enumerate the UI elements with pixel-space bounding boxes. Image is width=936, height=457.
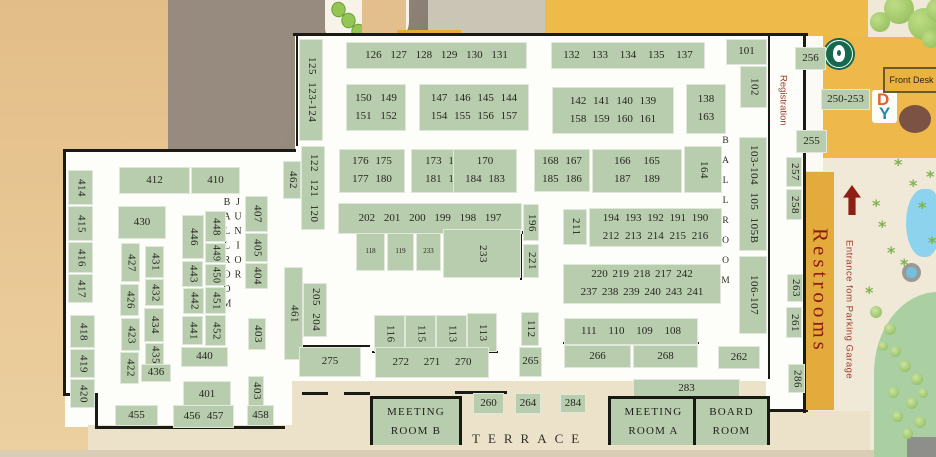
booth-261: 261	[786, 307, 802, 338]
booth-403: 403	[248, 318, 266, 350]
booth-number: 417	[72, 280, 90, 298]
booth-443: 443	[182, 261, 203, 287]
booth-number: 403	[248, 325, 266, 343]
booth-265: 265	[519, 347, 542, 377]
booth-number: 150 149 151 152	[355, 90, 397, 125]
booth-118: 118	[356, 233, 385, 271]
booth-number: 196	[522, 214, 540, 232]
booth-number: 441	[184, 322, 202, 340]
booth-number: 260	[480, 395, 497, 413]
booth-number: 426	[121, 291, 139, 309]
wall	[293, 33, 808, 36]
booth-number: 434	[145, 316, 163, 334]
booth-number: 283	[678, 380, 695, 398]
bush-icon	[902, 428, 913, 439]
booth-205-204: 205 204	[303, 283, 327, 337]
hotel-building	[545, 0, 868, 37]
bush-icon	[888, 387, 899, 398]
booth-number: 404	[248, 267, 266, 285]
booth-number: 420	[74, 385, 92, 403]
booth-431: 431	[145, 246, 164, 278]
booth-number: 113	[443, 325, 461, 343]
booth-418: 418	[70, 315, 95, 348]
board-room: Board Room	[693, 396, 770, 445]
booth-263: 263	[787, 274, 803, 302]
booth-number: 233	[423, 246, 434, 257]
booth-452: 452	[205, 315, 226, 346]
booth-458: 458	[247, 405, 274, 426]
bush-icon	[892, 411, 903, 422]
plant-icon: *	[900, 260, 908, 270]
booth-106-107: 106-107	[739, 256, 767, 334]
booth-number: 419	[74, 355, 92, 373]
booth-434: 434	[144, 308, 164, 342]
booth-220-219-218-217-242-237-238-239-240-243-241: 220 219 218 217 242 237 238 239 240 243 …	[563, 264, 721, 304]
booth-number: 418	[74, 323, 92, 341]
booth-number: 448	[207, 218, 225, 236]
booth-number: 103-104 105 105B	[744, 145, 762, 244]
booth-number: 142 141 140 139 158 159 160 161	[570, 93, 656, 128]
terrace-label: TERRACE	[472, 431, 587, 447]
booth-258: 258	[786, 189, 802, 220]
booth-number: 401	[199, 386, 216, 404]
booth-403: 403	[248, 376, 264, 406]
booth-420: 420	[70, 379, 95, 408]
parking-structure	[907, 437, 936, 457]
booth-446: 446	[182, 215, 204, 259]
up-arrow-icon	[843, 185, 861, 215]
booth-number: 435	[146, 346, 164, 364]
starbucks-siren-detail	[837, 50, 841, 56]
booth-number: 194 193 192 191 190 212 213 214 215 216	[603, 210, 709, 245]
bush-icon	[878, 341, 888, 351]
booth-176-175-177-180: 176 175 177 180	[339, 149, 405, 193]
booth-number: 220 219 218 217 242 237 238 239 240 243 …	[581, 266, 704, 301]
booth-194-193-192-191-190-212-213-214-215-216: 194 193 192 191 190 212 213 214 215 216	[589, 208, 722, 247]
booth-462: 462	[283, 161, 301, 199]
wall	[63, 149, 296, 152]
booth-262: 262	[718, 346, 760, 369]
booth-number: 168 167 185 186	[542, 153, 582, 188]
booth-number: 176 175 177 180	[352, 153, 392, 188]
booth-142-141-140-139-158-159-160-161: 142 141 140 139 158 159 160 161	[552, 87, 674, 134]
booth-150-149-151-152: 150 149 151 152	[346, 84, 406, 131]
booth-number: 268	[657, 348, 674, 366]
booth-number: 256	[802, 50, 819, 68]
restaurant-logo-y: Y	[879, 105, 890, 122]
floor-plan: Restrooms Entrance fom Parking Garage Re…	[0, 0, 936, 457]
booth-448: 448	[205, 211, 226, 242]
booth-422: 422	[120, 352, 139, 384]
booth-number: 412	[146, 172, 163, 190]
booth-number: 431	[146, 253, 164, 271]
booth-number: 122 121 120	[304, 154, 322, 223]
booth-number: 106-107	[744, 275, 762, 315]
booth-number: 147 146 145 144 154 155 156 157	[431, 90, 517, 125]
booth-number: 458	[252, 407, 269, 425]
booth-432: 432	[145, 279, 164, 306]
meeting-room-b-label: Meeting Room B	[387, 403, 445, 440]
booth-number: 102	[745, 78, 763, 96]
bush-icon	[890, 346, 901, 357]
bush-icon	[884, 323, 896, 335]
booth-405: 405	[245, 233, 268, 262]
meeting-room-b: Meeting Room B	[370, 396, 462, 445]
booth-number: 462	[283, 171, 301, 189]
booth-410: 410	[191, 167, 240, 194]
booth-196: 196	[523, 204, 539, 241]
booth-number: 410	[207, 172, 224, 190]
front-desk-box: Front Desk	[883, 67, 936, 93]
booth-number: 414	[72, 179, 90, 197]
booth-436: 436	[141, 364, 171, 382]
booth-number: 416	[72, 249, 90, 267]
bush-icon	[914, 416, 926, 428]
booth-412: 412	[119, 167, 190, 194]
booth-126-127-128-129-130-131: 126 127 128 129 130 131	[346, 42, 527, 69]
booth-103-104-105-105B: 103-104 105 105B	[739, 137, 767, 251]
plant-icon: *	[926, 172, 934, 182]
wall	[302, 392, 328, 395]
wall	[63, 149, 66, 396]
booth-170-184-183: 170 184 183	[453, 149, 517, 193]
bush-icon	[911, 373, 923, 385]
board-room-label: Board Room	[709, 403, 754, 440]
booth-125-123-124: 125 123-124	[299, 39, 323, 141]
booth-number: 442	[185, 292, 203, 310]
tree-icon	[870, 12, 890, 32]
booth-147-146-145-144-154-155-156-157: 147 146 145 144 154 155 156 157	[419, 84, 529, 131]
booth-number: 446	[184, 228, 202, 246]
booth-233: 233	[443, 229, 521, 278]
booth-256: 256	[795, 47, 826, 70]
booth-401: 401	[183, 381, 231, 408]
booth-number: 272 271 270	[393, 354, 472, 372]
booth-442: 442	[183, 288, 204, 314]
booth-number: 132 133 134 135 137	[563, 47, 693, 65]
starbucks-logo	[823, 38, 855, 70]
plant-icon: *	[887, 248, 895, 258]
booth-138-163: 138 163	[686, 84, 726, 134]
registration-label: Registration	[775, 68, 791, 132]
booth-407: 407	[245, 196, 268, 232]
booth-111-110-109-108: 111 110 109 108	[564, 318, 698, 345]
tree-icon	[922, 30, 936, 48]
booth-255: 255	[796, 130, 827, 153]
booth-250-253: 250-253	[821, 89, 870, 110]
plant-icon: *	[918, 203, 926, 213]
booth-168-167-185-186: 168 167 185 186	[534, 149, 590, 192]
booth-number: 423	[122, 326, 140, 344]
booth-102: 102	[740, 66, 767, 108]
booth-number: 275	[322, 353, 339, 371]
booth-404: 404	[245, 263, 268, 289]
plant-icon: *	[865, 288, 873, 298]
booth-211: 211	[563, 209, 587, 245]
booth-number: 126 127 128 129 130 131	[365, 47, 508, 65]
booth-number: 455	[128, 407, 145, 425]
booth-number: 211	[566, 218, 584, 236]
booth-number: 250-253	[827, 91, 864, 109]
booth-number: 427	[122, 254, 140, 272]
booth-number: 263	[786, 279, 804, 297]
booth-number: 138 163	[698, 91, 715, 126]
booth-number: 233	[473, 245, 491, 263]
booth-number: 415	[72, 215, 90, 233]
booth-number: 284	[565, 395, 582, 413]
booth-441: 441	[182, 316, 203, 345]
lobby-table	[899, 105, 931, 133]
booth-414: 414	[68, 170, 93, 205]
booth-number: 403	[247, 382, 265, 400]
booth-number: 111 110 109 108	[581, 323, 681, 341]
booth-number: 125 123-124	[302, 57, 320, 122]
booth-number: 461	[285, 305, 303, 323]
planter-box	[362, 0, 406, 33]
booth-number: 452	[207, 322, 225, 340]
booth-440: 440	[181, 347, 228, 367]
entrance-label: Entrance fom Parking Garage	[842, 218, 856, 402]
booth-264: 264	[515, 393, 541, 414]
booth-456-457: 456 457	[173, 405, 234, 428]
booth-number: 265	[522, 353, 539, 371]
booth-number: 115	[412, 325, 430, 343]
booth-423: 423	[121, 318, 140, 351]
booth-number: 450	[208, 267, 224, 284]
booth-416: 416	[68, 242, 93, 273]
restaurant-logo: D Y	[872, 90, 897, 123]
booth-number: 221	[522, 252, 540, 270]
booth-430: 430	[118, 206, 166, 239]
booth-286: 286	[788, 364, 805, 393]
booth-266: 266	[564, 345, 631, 368]
booth-233: 233	[416, 233, 441, 271]
booth-number: 202 201 200 199 198 197	[359, 210, 502, 228]
booth-number: 116	[381, 325, 399, 343]
booth-number: 119	[395, 246, 405, 257]
booth-284: 284	[560, 394, 586, 413]
booth-260: 260	[473, 393, 504, 414]
booth-number: 422	[121, 359, 139, 377]
bottom-edge	[0, 450, 936, 457]
booth-number: 118	[365, 246, 375, 257]
booth-number: 266	[589, 348, 606, 366]
booth-number: 101	[738, 43, 755, 61]
booth-number: 166 165 187 189	[614, 153, 660, 188]
bush-icon	[899, 360, 911, 372]
booth-415: 415	[68, 206, 93, 241]
booth-221: 221	[523, 244, 539, 278]
booth-449: 449	[205, 243, 226, 263]
booth-number: 451	[207, 292, 225, 310]
wall	[768, 36, 770, 379]
booth-number: 257	[785, 163, 803, 181]
booth-275: 275	[299, 347, 361, 377]
booth-119: 119	[387, 233, 414, 271]
booth-number: 264	[520, 395, 537, 413]
booth-number: 170 184 183	[465, 153, 505, 188]
junior-ballroom-label: JUNIOR BALLROOM	[225, 197, 240, 409]
booth-132-133-134-135-137: 132 133 134 135 137	[551, 42, 705, 69]
plant-icon: *	[928, 238, 936, 248]
wall	[296, 36, 298, 146]
booth-number: 443	[184, 265, 202, 283]
front-desk-label: Front Desk	[889, 75, 933, 85]
booth-417: 417	[68, 274, 93, 303]
booth-number: 456 457	[184, 408, 224, 426]
booth-number: 261	[785, 314, 803, 332]
booth-number: 113	[473, 324, 491, 342]
plant-icon: *	[872, 201, 880, 211]
restrooms-strip: Restrooms	[806, 172, 834, 410]
wall	[95, 393, 98, 429]
booth-number: 164	[694, 161, 712, 179]
booth-435: 435	[145, 343, 164, 366]
booth-257: 257	[786, 157, 802, 187]
booth-number: 205 204	[306, 288, 324, 331]
bush-icon	[906, 397, 918, 409]
bush-icon	[918, 388, 928, 398]
booth-166-165-187-189: 166 165 187 189	[592, 149, 682, 193]
booth-426: 426	[120, 284, 139, 316]
restrooms-label: Restrooms	[808, 228, 833, 354]
booth-number: 286	[788, 370, 806, 388]
booth-272-271-270: 272 271 270	[375, 347, 489, 378]
booth-number: 405	[248, 239, 266, 257]
meeting-room-a: Meeting Room A	[608, 396, 699, 445]
booth-112: 112	[521, 312, 539, 346]
booth-450: 450	[205, 264, 226, 286]
plant-icon: *	[909, 181, 917, 191]
booth-number: 449	[208, 245, 224, 262]
meeting-room-a-label: Meeting Room A	[625, 403, 683, 440]
plant-icon: *	[878, 222, 886, 232]
booth-number: 430	[134, 214, 151, 232]
booth-455: 455	[115, 405, 158, 426]
booth-164: 164	[684, 146, 722, 193]
booth-number: 407	[248, 205, 266, 223]
booth-419: 419	[70, 349, 95, 378]
booth-122-121-120: 122 121 120	[301, 146, 325, 230]
plant-icon: *	[894, 160, 902, 170]
booth-number: 258	[785, 196, 803, 214]
booth-427: 427	[121, 243, 140, 282]
bush-icon	[870, 306, 882, 318]
booth-number: 436	[148, 364, 165, 382]
wall	[766, 409, 808, 412]
booth-number: 262	[731, 349, 748, 367]
booth-number: 432	[146, 284, 164, 302]
booth-101: 101	[726, 39, 767, 65]
booth-number: 440	[196, 348, 213, 366]
booth-number: 112	[521, 320, 539, 338]
booth-number: 255	[803, 133, 820, 151]
booth-268: 268	[633, 345, 698, 368]
wall	[344, 392, 370, 395]
booth-451: 451	[205, 287, 226, 314]
